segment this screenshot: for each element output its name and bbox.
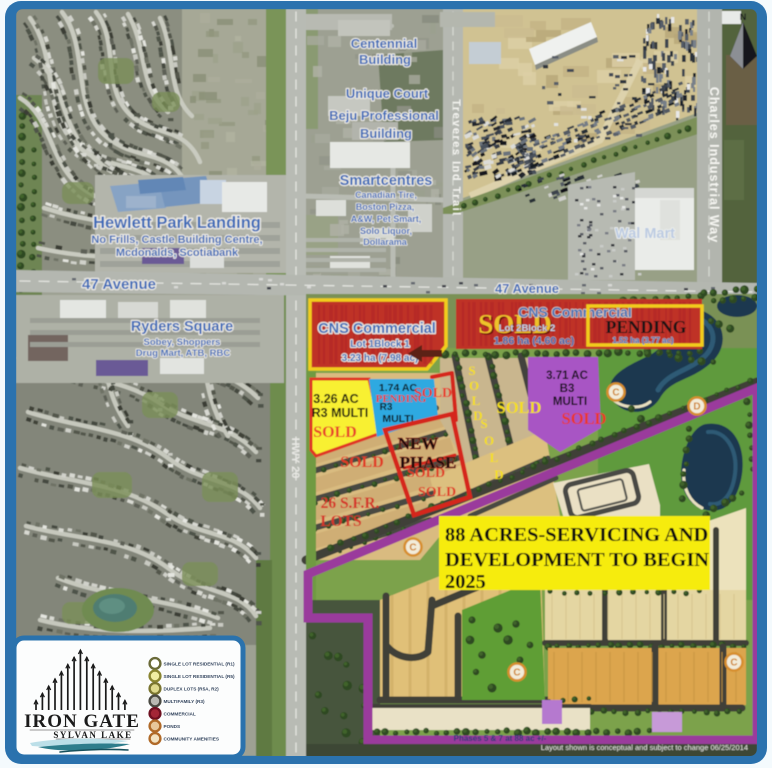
- svg-text:SOLD: SOLD: [414, 386, 452, 401]
- svg-text:N: N: [740, 12, 747, 22]
- svg-text:C: C: [513, 668, 520, 679]
- svg-text:Phases 5 & 7 at 88 ac +/-: Phases 5 & 7 at 88 ac +/-: [454, 734, 547, 743]
- svg-text:SYLVAN LAKE: SYLVAN LAKE: [53, 730, 132, 740]
- svg-text:L: L: [490, 450, 499, 465]
- svg-text:Wal Mart: Wal Mart: [615, 226, 675, 242]
- svg-text:SOLD: SOLD: [562, 409, 607, 428]
- svg-text:Building: Building: [359, 52, 411, 67]
- svg-text:3.26 AC: 3.26 AC: [313, 392, 358, 406]
- svg-text:NEW: NEW: [398, 434, 439, 453]
- svg-text:SINGLE LOT RESIDENTIAL (R1): SINGLE LOT RESIDENTIAL (R1): [164, 661, 235, 666]
- svg-text:No Frills, Castle Building Cen: No Frills, Castle Building Centre,: [91, 234, 262, 246]
- svg-text:Dollarama: Dollarama: [363, 237, 408, 247]
- svg-text:DEVELOPMENT TO BEGIN: DEVELOPMENT TO BEGIN: [445, 549, 709, 571]
- svg-text:Sobey, Shoppers: Sobey, Shoppers: [144, 337, 221, 348]
- svg-text:1.52 ha (3.77 ac): 1.52 ha (3.77 ac): [612, 336, 674, 345]
- svg-text:O: O: [469, 378, 479, 393]
- svg-text:CNS Commercial: CNS Commercial: [318, 321, 436, 337]
- svg-text:DUPLEX LOTS (R5A, R2): DUPLEX LOTS (R5A, R2): [164, 686, 220, 691]
- svg-text:Smartcentres: Smartcentres: [340, 173, 433, 189]
- svg-text:Lot 1Block 1: Lot 1Block 1: [350, 339, 410, 350]
- svg-text:C: C: [612, 388, 619, 399]
- svg-text:D: D: [693, 402, 700, 413]
- svg-text:COMMERCIAL: COMMERCIAL: [164, 711, 196, 716]
- svg-text:PONDS: PONDS: [164, 724, 181, 729]
- svg-text:L: L: [472, 393, 481, 408]
- svg-text:HWY 20: HWY 20: [289, 438, 301, 479]
- svg-text:MULTIFAMILY (R3): MULTIFAMILY (R3): [164, 699, 205, 704]
- svg-text:Layout shown is conceptual and: Layout shown is conceptual and subject t…: [541, 743, 748, 752]
- svg-text:C: C: [730, 658, 737, 669]
- svg-text:Mcdonalds, Scotiabank: Mcdonalds, Scotiabank: [116, 247, 239, 259]
- svg-text:SOLD: SOLD: [418, 485, 456, 500]
- svg-text:IRON GATE: IRON GATE: [24, 711, 140, 732]
- svg-text:D: D: [494, 467, 503, 482]
- svg-text:3.23 ha (7.98 ac): 3.23 ha (7.98 ac): [342, 353, 419, 364]
- svg-text:COMMUNITY AMENITIES: COMMUNITY AMENITIES: [164, 736, 219, 741]
- svg-text:26 S.F.R.: 26 S.F.R.: [321, 495, 380, 512]
- svg-text:Ryders Square: Ryders Square: [131, 319, 233, 335]
- svg-text:Centennial: Centennial: [351, 36, 417, 51]
- svg-text:3.71 AC: 3.71 AC: [546, 370, 588, 382]
- svg-text:SOLD: SOLD: [313, 424, 357, 441]
- svg-text:2025: 2025: [445, 571, 486, 593]
- svg-text:S: S: [468, 363, 475, 378]
- svg-text:R3: R3: [380, 402, 393, 413]
- svg-text:B3: B3: [560, 383, 575, 395]
- svg-text:47 Avenue: 47 Avenue: [495, 281, 559, 296]
- svg-text:SOLD: SOLD: [340, 454, 384, 471]
- svg-text:LOTS: LOTS: [320, 513, 361, 530]
- svg-text:S: S: [480, 416, 487, 431]
- svg-text:Drug Mart, ATB, RBC: Drug Mart, ATB, RBC: [136, 348, 231, 359]
- svg-text:88 ACRES-SERVICING AND: 88 ACRES-SERVICING AND: [445, 524, 708, 546]
- svg-text:A&W, Pet Smart,: A&W, Pet Smart,: [351, 214, 422, 224]
- svg-text:Boston Pizza,: Boston Pizza,: [356, 202, 415, 212]
- svg-text:Solo Liquor,: Solo Liquor,: [360, 226, 412, 236]
- svg-text:MULTI: MULTI: [553, 396, 587, 408]
- svg-text:Treveres Ind Trail: Treveres Ind Trail: [450, 99, 462, 217]
- svg-text:Beju Professional: Beju Professional: [329, 108, 439, 123]
- svg-text:R3 MULTI: R3 MULTI: [312, 406, 369, 420]
- svg-text:Canadian Tire,: Canadian Tire,: [355, 190, 417, 200]
- svg-text:SINGLE LOT RESIDENTIAL (R5): SINGLE LOT RESIDENTIAL (R5): [164, 674, 235, 679]
- svg-text:Building: Building: [360, 126, 412, 141]
- svg-text:SOLD: SOLD: [497, 398, 542, 417]
- svg-text:O: O: [484, 433, 494, 448]
- svg-text:SOLD: SOLD: [407, 466, 445, 481]
- svg-text:Hewlett Park Landing: Hewlett Park Landing: [93, 214, 261, 232]
- svg-text:Unique Court: Unique Court: [346, 86, 429, 101]
- svg-text:1.86 ha (4.60 ac): 1.86 ha (4.60 ac): [494, 335, 575, 347]
- svg-text:Charles Industrial Way: Charles Industrial Way: [707, 87, 721, 243]
- svg-text:47 Avenue: 47 Avenue: [82, 276, 156, 293]
- svg-text:PENDING: PENDING: [606, 317, 687, 337]
- svg-text:C: C: [409, 543, 416, 554]
- svg-text:Lot 2Block 2: Lot 2Block 2: [499, 323, 556, 334]
